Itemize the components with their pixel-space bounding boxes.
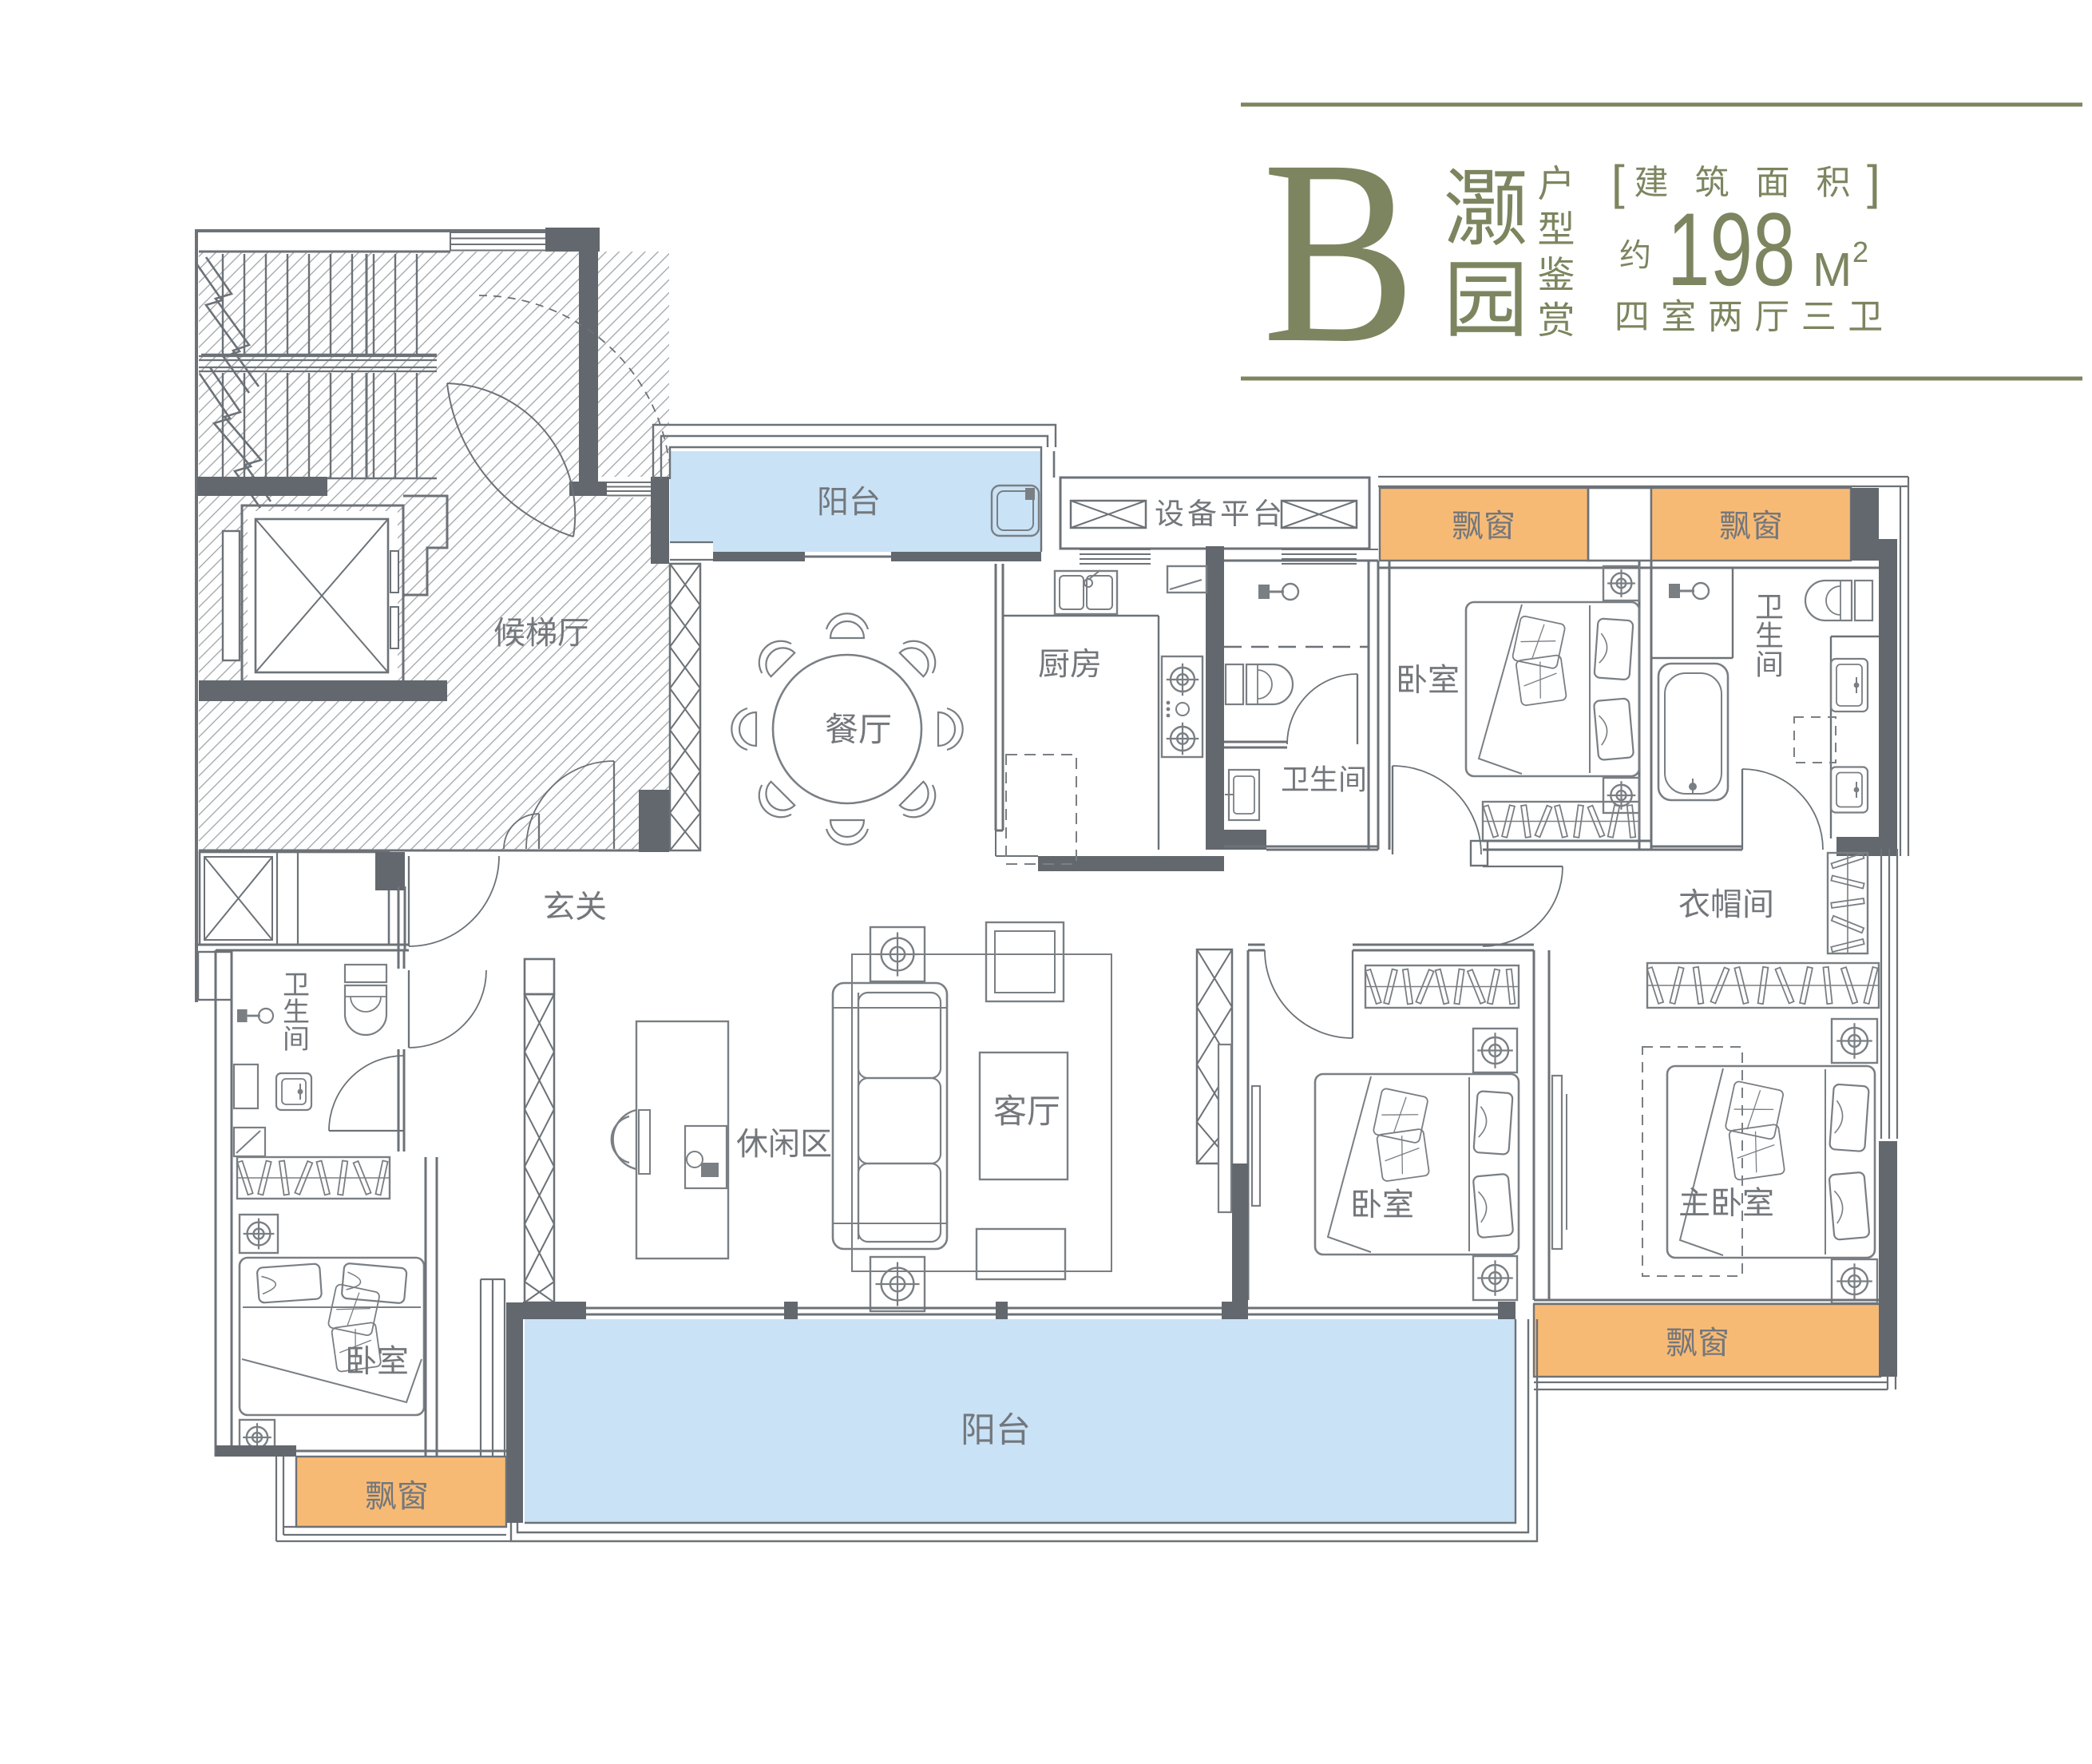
svg-text:M: M: [1813, 244, 1852, 296]
svg-text:198: 198: [1667, 192, 1795, 308]
svg-text:]: ]: [1867, 156, 1880, 209]
svg-text:2: 2: [1852, 236, 1868, 268]
svg-text:[: [: [1611, 156, 1625, 209]
svg-text:B: B: [1262, 106, 1416, 398]
